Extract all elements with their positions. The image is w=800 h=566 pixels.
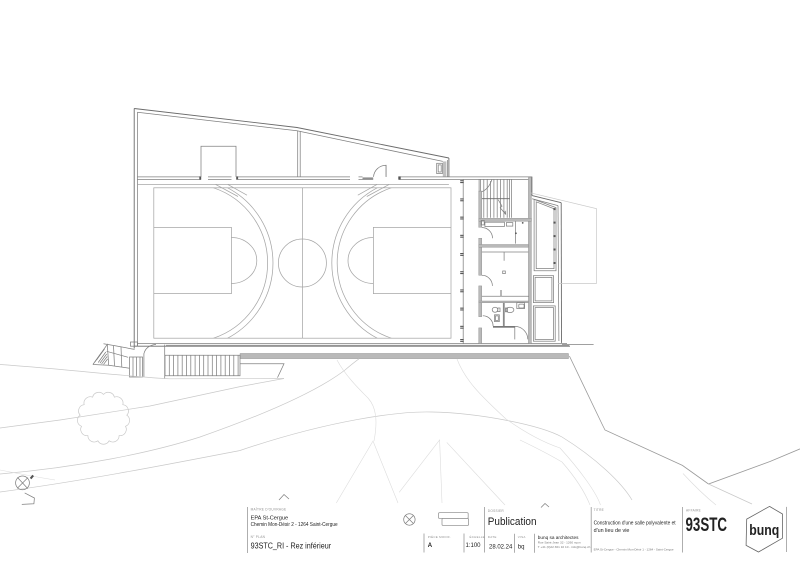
svg-text:ÉCHELLE: ÉCHELLE [470,534,485,539]
svg-text:EPA St-Cergue: EPA St-Cergue [251,515,289,521]
svg-text:93STC_RI - Rez inférieur: 93STC_RI - Rez inférieur [251,542,332,551]
svg-text:Rue Saint-Jean 32 - 1260 nyon: Rue Saint-Jean 32 - 1260 nyon [538,540,581,544]
svg-text:DATE: DATE [488,535,497,539]
svg-text:bunq: bunq [749,522,779,539]
svg-text:PIÈCE MODIF.: PIÈCE MODIF. [428,534,451,539]
svg-text:Construction d'une salle polyv: Construction d'une salle polyvalente et [594,521,676,527]
svg-text:T +41 (0)22 361 10 10 - info@b: T +41 (0)22 361 10 10 - info@bunq.ch [538,545,591,549]
svg-text:1:100: 1:100 [465,543,481,549]
svg-text:Publication: Publication [488,516,537,528]
svg-text:A: A [428,543,433,549]
svg-text:d'un lieu de vie: d'un lieu de vie [594,528,630,534]
svg-text:MAÎTRE D'OUVRAGE: MAÎTRE D'OUVRAGE [251,508,287,512]
svg-text:VISA: VISA [518,535,526,539]
svg-text:DOSSIER: DOSSIER [488,509,505,513]
svg-text:93STC: 93STC [686,514,728,536]
svg-text:N° PLAN: N° PLAN [251,535,266,539]
svg-text:EPA St-Cergue - Chemin Mon-Dés: EPA St-Cergue - Chemin Mon-Désir 1 - 126… [594,548,674,552]
svg-text:28.02.24: 28.02.24 [489,545,513,551]
svg-text:Chemin Mon-Désir 2 - 1264 Sain: Chemin Mon-Désir 2 - 1264 Saint-Cergue [251,522,338,528]
svg-text:AFFAIRE: AFFAIRE [686,509,701,513]
svg-text:TITRE: TITRE [594,508,604,512]
svg-text:bq: bq [518,545,525,551]
